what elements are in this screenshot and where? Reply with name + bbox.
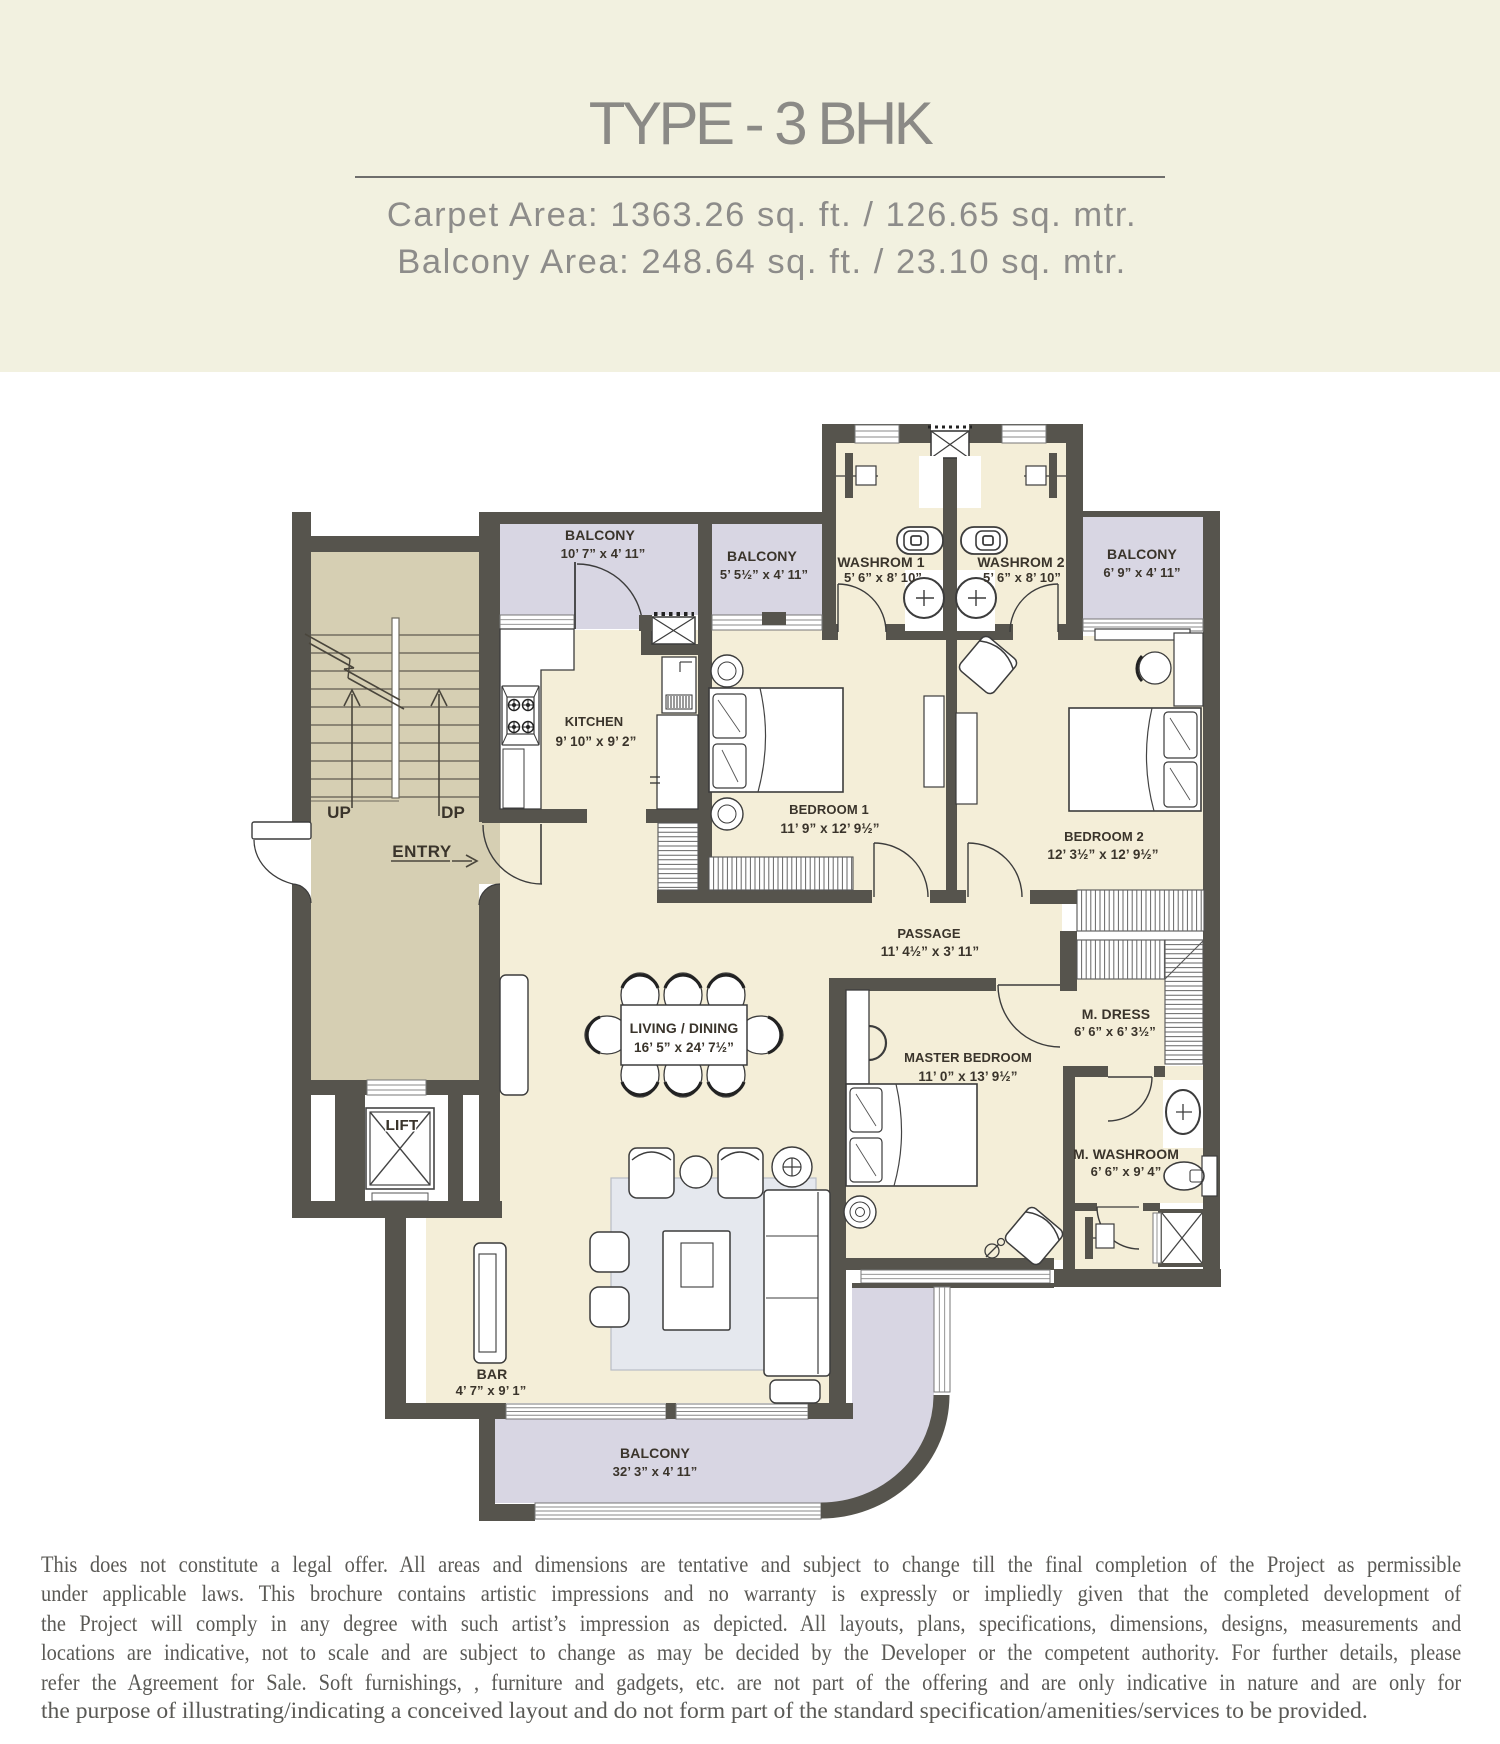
- svg-text:12’ 3½” x 12’ 9½”: 12’ 3½” x 12’ 9½”: [1047, 847, 1158, 862]
- svg-text:M. DRESS: M. DRESS: [1082, 1006, 1150, 1022]
- svg-text:6’ 9” x 4’ 11”: 6’ 9” x 4’ 11”: [1103, 565, 1180, 580]
- svg-text:11’ 0” x 13’ 9½”: 11’ 0” x 13’ 9½”: [918, 1069, 1017, 1084]
- svg-text:10’ 7” x 4’ 11”: 10’ 7” x 4’ 11”: [561, 546, 646, 561]
- svg-text:9’ 10” x 9’ 2”: 9’ 10” x 9’ 2”: [556, 734, 637, 749]
- svg-text:BALCONY: BALCONY: [565, 527, 635, 543]
- svg-text:WASHROM 1: WASHROM 1: [837, 554, 924, 570]
- svg-text:32’ 3” x 4’ 11”: 32’ 3” x 4’ 11”: [613, 1464, 698, 1479]
- svg-text:LIVING / DINING: LIVING / DINING: [630, 1020, 739, 1036]
- svg-text:BAR: BAR: [477, 1366, 508, 1382]
- svg-text:PASSAGE: PASSAGE: [897, 926, 961, 941]
- svg-text:WASHROM 2: WASHROM 2: [977, 554, 1064, 570]
- svg-text:BALCONY: BALCONY: [1107, 546, 1177, 562]
- svg-text:5’ 5½” x 4’ 11”: 5’ 5½” x 4’ 11”: [720, 567, 808, 582]
- svg-text:KITCHEN: KITCHEN: [565, 714, 623, 729]
- svg-text:ENTRY: ENTRY: [392, 842, 452, 861]
- svg-text:5’ 6” x 8’ 10”: 5’ 6” x 8’ 10”: [983, 570, 1061, 585]
- svg-text:5’ 6” x 8’ 10”: 5’ 6” x 8’ 10”: [844, 570, 922, 585]
- svg-text:16’ 5” x 24’ 7½”: 16’ 5” x 24’ 7½”: [634, 1040, 734, 1055]
- svg-text:LIFT: LIFT: [386, 1117, 419, 1134]
- svg-text:11’ 9” x 12’ 9½”: 11’ 9” x 12’ 9½”: [780, 821, 879, 836]
- svg-text:BALCONY: BALCONY: [727, 548, 797, 564]
- svg-text:6’ 6” x 6’ 3½”: 6’ 6” x 6’ 3½”: [1074, 1024, 1156, 1039]
- svg-text:11’ 4½” x 3’ 11”: 11’ 4½” x 3’ 11”: [881, 944, 979, 959]
- svg-text:UP: UP: [327, 803, 351, 822]
- svg-text:M. WASHROOM: M. WASHROOM: [1073, 1146, 1179, 1162]
- svg-text:BALCONY: BALCONY: [620, 1445, 690, 1461]
- svg-text:6’ 6” x 9’ 4”: 6’ 6” x 9’ 4”: [1091, 1164, 1162, 1179]
- svg-text:BEDROOM 1: BEDROOM 1: [789, 802, 869, 817]
- svg-text:MASTER BEDROOM: MASTER BEDROOM: [904, 1050, 1032, 1065]
- svg-text:4’ 7” x 9’ 1”: 4’ 7” x 9’ 1”: [456, 1383, 527, 1398]
- svg-text:BEDROOM 2: BEDROOM 2: [1064, 829, 1144, 844]
- svg-text:DP: DP: [441, 803, 465, 822]
